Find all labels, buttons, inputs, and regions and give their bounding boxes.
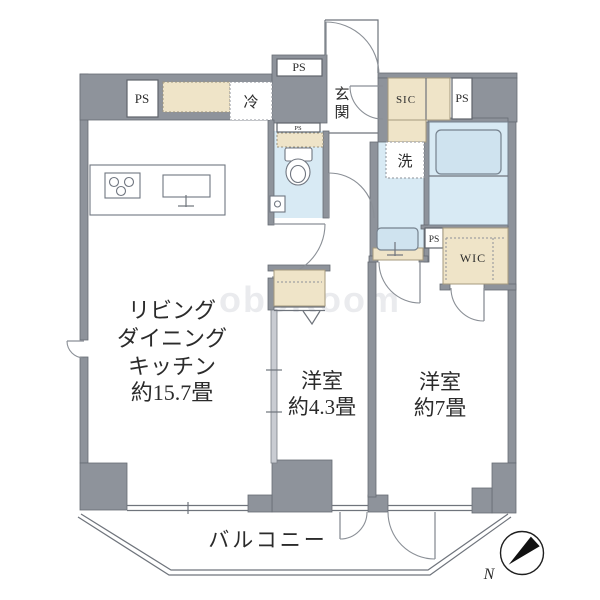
floorplan-drawing: oboRoom [0,0,600,600]
entrance-door-arc [326,22,379,75]
entrance-label-char1: 玄 [334,86,349,103]
ps-label-entry-right: PS [455,91,468,105]
wall-left-lower [80,357,88,463]
toilet-hand-basin-bowl [275,201,281,207]
washer-label: 洗 [397,153,412,170]
wall-bedroom-divider [368,262,376,497]
ps-label-top-middle: PS [292,60,305,74]
ps-label-top-left: PS [135,91,149,106]
stove-burner-2 [125,178,134,187]
wall-top-right [378,73,517,78]
wic-label: WIC [460,251,486,265]
compass-north-label: N [483,566,496,583]
compass-icon: N [483,532,544,584]
kitchen-cabinet [163,82,230,112]
wall-wic-bottom-left [440,284,450,290]
hall-door-arc [329,173,374,218]
ps-label-toilet-top: PS [294,125,302,132]
wall-wic-bottom-right [484,284,516,290]
ps-label-wic-side: PS [429,235,440,245]
bedroom1-size: 約4.3畳 [288,395,356,419]
vanity-sink [377,228,418,250]
kitchen-sink [163,175,210,197]
stove-burner-1 [110,178,119,187]
entrance-label-char2: 関 [334,105,349,121]
pillar-bottom-right-outer [492,463,516,513]
balcony-door2-arc [388,512,435,559]
ldk-label-line2: ダイニング [117,326,227,351]
floorplan-page: oboRoom [0,0,600,600]
ldk-label-size: 約15.7畳 [131,380,214,405]
balcony-label: バルコニー [208,528,328,552]
pillar-bottom-middle-ext [248,495,272,512]
ldk-label-line1: リビング [128,298,216,323]
left-wall-hatch-arc [67,341,84,358]
bedroom1-closet [274,270,325,306]
pillar-bottom-left [80,463,127,510]
toilet-bowl-inner [291,166,306,183]
bedroom2-size: 約7畳 [414,396,467,420]
sic-label: SIC [396,94,416,106]
bedroom2-label: 洋室 [419,370,461,394]
toilet-shelf [277,133,323,147]
balcony-door1-arc [340,512,367,539]
wall-corner-top-right [472,78,517,122]
wic-door-arc [451,288,484,321]
wall-step-bottom [368,495,388,512]
bedroom1-label: 洋室 [301,369,343,393]
wall-hall-sic [378,78,388,142]
wall-right [508,122,516,463]
partition-ldk-bedroom1 [271,310,277,463]
stove-burner-3 [117,187,126,196]
wall-ldk-corridor [268,278,274,310]
sic-cabinet-lower [388,120,426,142]
refrigerator-label: 冷 [243,94,258,111]
pillar-bottom-middle [272,460,332,512]
bathtub [436,130,501,174]
pillar-bottom-right-inner [472,488,492,513]
ldk-label-line3: キッチン [128,354,216,379]
wall-toilet-right [323,131,329,218]
